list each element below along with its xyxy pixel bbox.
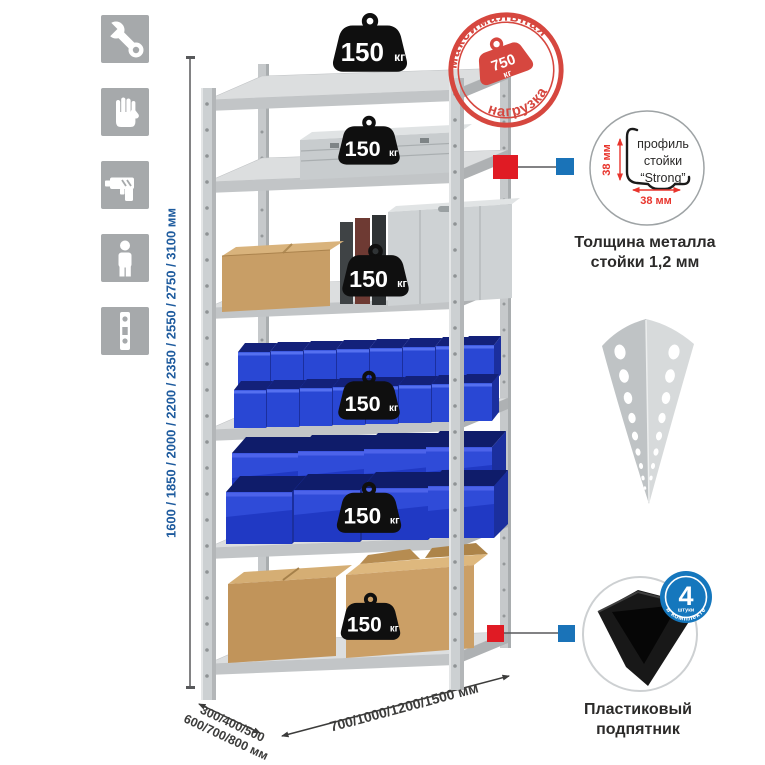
weight-icon: 150 кг xyxy=(328,243,423,300)
weight-label-3: 150 кг xyxy=(328,243,423,300)
level-icon xyxy=(101,307,149,355)
weight-icon: 150 кг xyxy=(317,12,423,76)
weight-label-6: 150 кг xyxy=(328,592,413,643)
red-marker-square xyxy=(493,155,518,179)
svg-text:кг: кг xyxy=(394,50,405,64)
svg-text:150: 150 xyxy=(341,37,384,67)
person-icon xyxy=(101,234,149,282)
badge-unit: штуки xyxy=(678,608,695,614)
drill-icon xyxy=(101,161,149,209)
profile-label-line3: “Strong” xyxy=(640,171,685,185)
weight-icon: 150 кг xyxy=(323,481,415,536)
svg-text:150: 150 xyxy=(343,504,381,529)
foot-connector xyxy=(487,625,575,642)
svg-text:кг: кг xyxy=(397,278,407,290)
angle-post-image xyxy=(602,319,694,504)
weight-label-5: 150 кг xyxy=(323,481,415,536)
svg-text:150: 150 xyxy=(349,266,388,292)
weight-label-2: 150 кг xyxy=(325,115,413,168)
svg-text:150: 150 xyxy=(345,136,381,161)
svg-text:кг: кг xyxy=(389,148,398,159)
svg-text:150: 150 xyxy=(345,391,381,416)
sidebar-icon-assembly xyxy=(101,15,149,63)
svg-text:кг: кг xyxy=(390,516,400,527)
weight-icon: 150 кг xyxy=(325,370,413,423)
weight-icon: 150 кг xyxy=(328,592,413,643)
plastic-foot-caption: Пластиковый подпятник xyxy=(584,700,692,740)
wrench-icon xyxy=(101,15,149,63)
badge-value: 4 xyxy=(678,581,693,611)
profile-label-line1: профиль xyxy=(637,137,689,151)
svg-text:кг: кг xyxy=(390,623,399,634)
weight-icon: 150 кг xyxy=(325,115,413,168)
profile-connector xyxy=(493,155,574,179)
svg-text:150: 150 xyxy=(347,613,382,636)
gloves-icon xyxy=(101,88,149,136)
foot-callout-circle: 4 штуки в комплекте xyxy=(583,571,712,691)
metal-thickness-caption: Толщина металла стойки 1,2 мм xyxy=(574,233,715,273)
blue-marker-square xyxy=(558,625,575,642)
profile-label-line2: стойки xyxy=(644,154,682,168)
profile-dim-vertical-label: 38 мм xyxy=(601,144,613,176)
height-dimension-line xyxy=(186,56,195,689)
sidebar-icon-level xyxy=(101,307,149,355)
profile-dim-horizontal-label: 38 мм xyxy=(640,195,672,207)
height-dimension-label: 1600 / 1850 / 2000 / 2200 / 2350 / 2550 … xyxy=(164,208,179,538)
product-infographic: 38 мм 38 мм профиль стойки “Strong” xyxy=(0,0,765,765)
max-load-stamp: максимальная нагрузка 750 кг xyxy=(442,6,570,134)
weight-label-4: 150 кг xyxy=(325,370,413,423)
profile-callout-circle: 38 мм 38 мм профиль стойки “Strong” xyxy=(590,111,704,225)
max-load-stamp-icon: максимальная нагрузка 750 кг xyxy=(442,6,570,134)
sidebar-icon-gloves xyxy=(101,88,149,136)
sidebar-icon-drill xyxy=(101,161,149,209)
cardboard-box-shelf3 xyxy=(222,241,344,312)
sidebar-icon-person xyxy=(101,234,149,282)
weight-label-1: 150 кг xyxy=(317,12,423,76)
blue-marker-square xyxy=(556,158,574,175)
red-marker-square xyxy=(487,625,504,642)
quantity-badge: 4 штуки в комплекте xyxy=(660,571,712,623)
svg-text:кг: кг xyxy=(389,403,398,414)
